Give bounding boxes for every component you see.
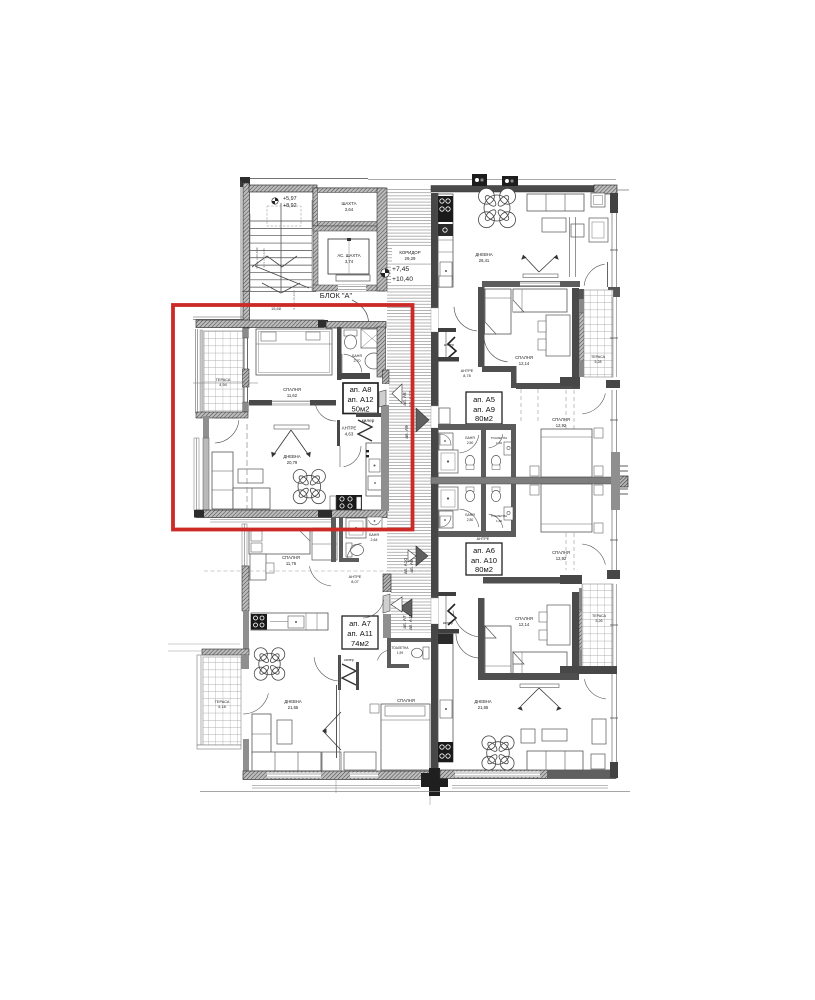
svg-text:8,07: 8,07 xyxy=(351,580,358,584)
svg-text:4,63: 4,63 xyxy=(345,432,354,437)
svg-text:ТЕРАСА: ТЕРАСА xyxy=(592,614,607,618)
svg-text:СПАЛНЯ: СПАЛНЯ xyxy=(283,387,301,392)
svg-text:БАНЯ: БАНЯ xyxy=(369,533,379,537)
svg-text:4,94: 4,94 xyxy=(219,383,226,387)
svg-text:+7,45: +7,45 xyxy=(392,266,409,273)
svg-text:ШАХТА: ШАХТА xyxy=(341,201,356,206)
svg-text:11,76: 11,76 xyxy=(286,561,297,566)
svg-text:ап. А6: ап. А6 xyxy=(473,546,495,555)
svg-text:ап. А7: ап. А7 xyxy=(402,615,407,629)
svg-text:ДНЕВНА: ДНЕВНА xyxy=(475,252,492,257)
svg-text:БАНЯ: БАНЯ xyxy=(465,513,475,517)
svg-text:12,92: 12,92 xyxy=(556,556,567,561)
svg-text:2,50: 2,50 xyxy=(467,518,474,522)
svg-text:БАНЯ: БАНЯ xyxy=(465,436,475,440)
svg-text:5,28: 5,28 xyxy=(595,360,602,364)
svg-text:ТОАЛЕТНА: ТОАЛЕТНА xyxy=(491,514,508,518)
svg-text:ап. А11: ап. А11 xyxy=(347,629,373,638)
svg-text:1,99: 1,99 xyxy=(397,651,403,655)
svg-text:ТЕРАСА: ТЕРАСА xyxy=(591,355,606,359)
svg-text:74м2: 74м2 xyxy=(351,639,369,648)
svg-text:ап. А7: ап. А7 xyxy=(349,619,371,628)
svg-text:СПАЛНЯ: СПАЛНЯ xyxy=(282,555,300,560)
svg-text:21,65: 21,65 xyxy=(478,705,489,710)
svg-text:килер: килер xyxy=(344,658,353,662)
svg-text:12,14: 12,14 xyxy=(519,622,530,627)
svg-text:СПАЛНЯ: СПАЛНЯ xyxy=(552,550,570,555)
svg-text:20,79: 20,79 xyxy=(287,460,298,465)
svg-text:АНТРЕ: АНТРЕ xyxy=(349,575,362,579)
svg-text:ТОАЛЕТНА: ТОАЛЕТНА xyxy=(491,436,508,440)
svg-text:50м2: 50м2 xyxy=(352,405,370,414)
svg-text:12,14: 12,14 xyxy=(519,361,530,366)
svg-text:21,65: 21,65 xyxy=(288,705,299,710)
svg-text:3,74: 3,74 xyxy=(345,259,354,264)
svg-text:2,64: 2,64 xyxy=(345,207,354,212)
svg-text:+5,97: +5,97 xyxy=(283,196,297,202)
svg-text:ап. А10: ап. А10 xyxy=(471,556,497,565)
svg-text:АНТРЕ: АНТРЕ xyxy=(342,426,357,431)
svg-text:АС. ШАХТА: АС. ШАХТА xyxy=(337,253,360,258)
svg-text:ап. А8: ап. А8 xyxy=(402,392,407,406)
svg-text:ДНЕВНА: ДНЕВНА xyxy=(283,454,300,459)
svg-text:СПАЛНЯ: СПАЛНЯ xyxy=(515,355,533,360)
svg-text:ап. А10: ап. А10 xyxy=(403,558,408,574)
svg-text:26,41: 26,41 xyxy=(479,258,490,263)
svg-text:+10,40: +10,40 xyxy=(392,276,413,283)
svg-text:80м2: 80м2 xyxy=(475,414,493,423)
svg-text:1,60: 1,60 xyxy=(496,519,502,523)
svg-text:ТЕРАСА: ТЕРАСА xyxy=(215,700,230,704)
svg-text:ап. А12: ап. А12 xyxy=(347,395,373,404)
svg-text:9 изк. х 16,4/30: 9 изк. х 16,4/30 xyxy=(255,247,259,268)
svg-text:ТОАЛЕТНА: ТОАЛЕТНА xyxy=(391,646,409,650)
svg-text:СПАЛНЯ: СПАЛНЯ xyxy=(552,417,570,422)
svg-text:29,29: 29,29 xyxy=(405,256,417,261)
svg-text:+8,92: +8,92 xyxy=(283,203,297,209)
svg-text:АНТРЕ: АНТРЕ xyxy=(477,537,490,541)
svg-text:8,78: 8,78 xyxy=(463,374,470,378)
svg-text:БЛОК "А": БЛОК "А" xyxy=(320,291,353,300)
svg-text:СПАЛНЯ: СПАЛНЯ xyxy=(515,616,533,621)
svg-text:11,62: 11,62 xyxy=(287,393,298,398)
svg-text:5,18: 5,18 xyxy=(218,705,225,709)
svg-text:80м2: 80м2 xyxy=(475,565,493,574)
svg-text:ап. А8: ап. А8 xyxy=(350,385,372,394)
svg-text:12,92: 12,92 xyxy=(556,423,567,428)
svg-text:ап. А9: ап. А9 xyxy=(404,425,409,439)
svg-text:ап. А6: ап. А6 xyxy=(409,559,414,573)
svg-text:ап. А5: ап. А5 xyxy=(473,395,495,404)
svg-text:9 ст. х 16,4/30: 9 ст. х 16,4/30 xyxy=(262,248,266,267)
svg-text:5,26: 5,26 xyxy=(596,619,603,623)
svg-text:2,64: 2,64 xyxy=(371,538,378,542)
svg-text:ДНЕВНА: ДНЕВНА xyxy=(284,699,301,704)
svg-text:2,50: 2,50 xyxy=(467,441,474,445)
svg-text:СПАЛНЯ: СПАЛНЯ xyxy=(397,698,415,703)
svg-text:АНТРЕ: АНТРЕ xyxy=(461,369,474,373)
svg-text:КОРИДОР: КОРИДОР xyxy=(399,250,420,255)
svg-text:ТЕРАСА: ТЕРАСА xyxy=(216,378,231,382)
svg-text:ап. А11: ап. А11 xyxy=(408,614,413,630)
svg-text:ДНЕВНА: ДНЕВНА xyxy=(474,699,491,704)
svg-text:ап. А9: ап. А9 xyxy=(473,405,495,414)
